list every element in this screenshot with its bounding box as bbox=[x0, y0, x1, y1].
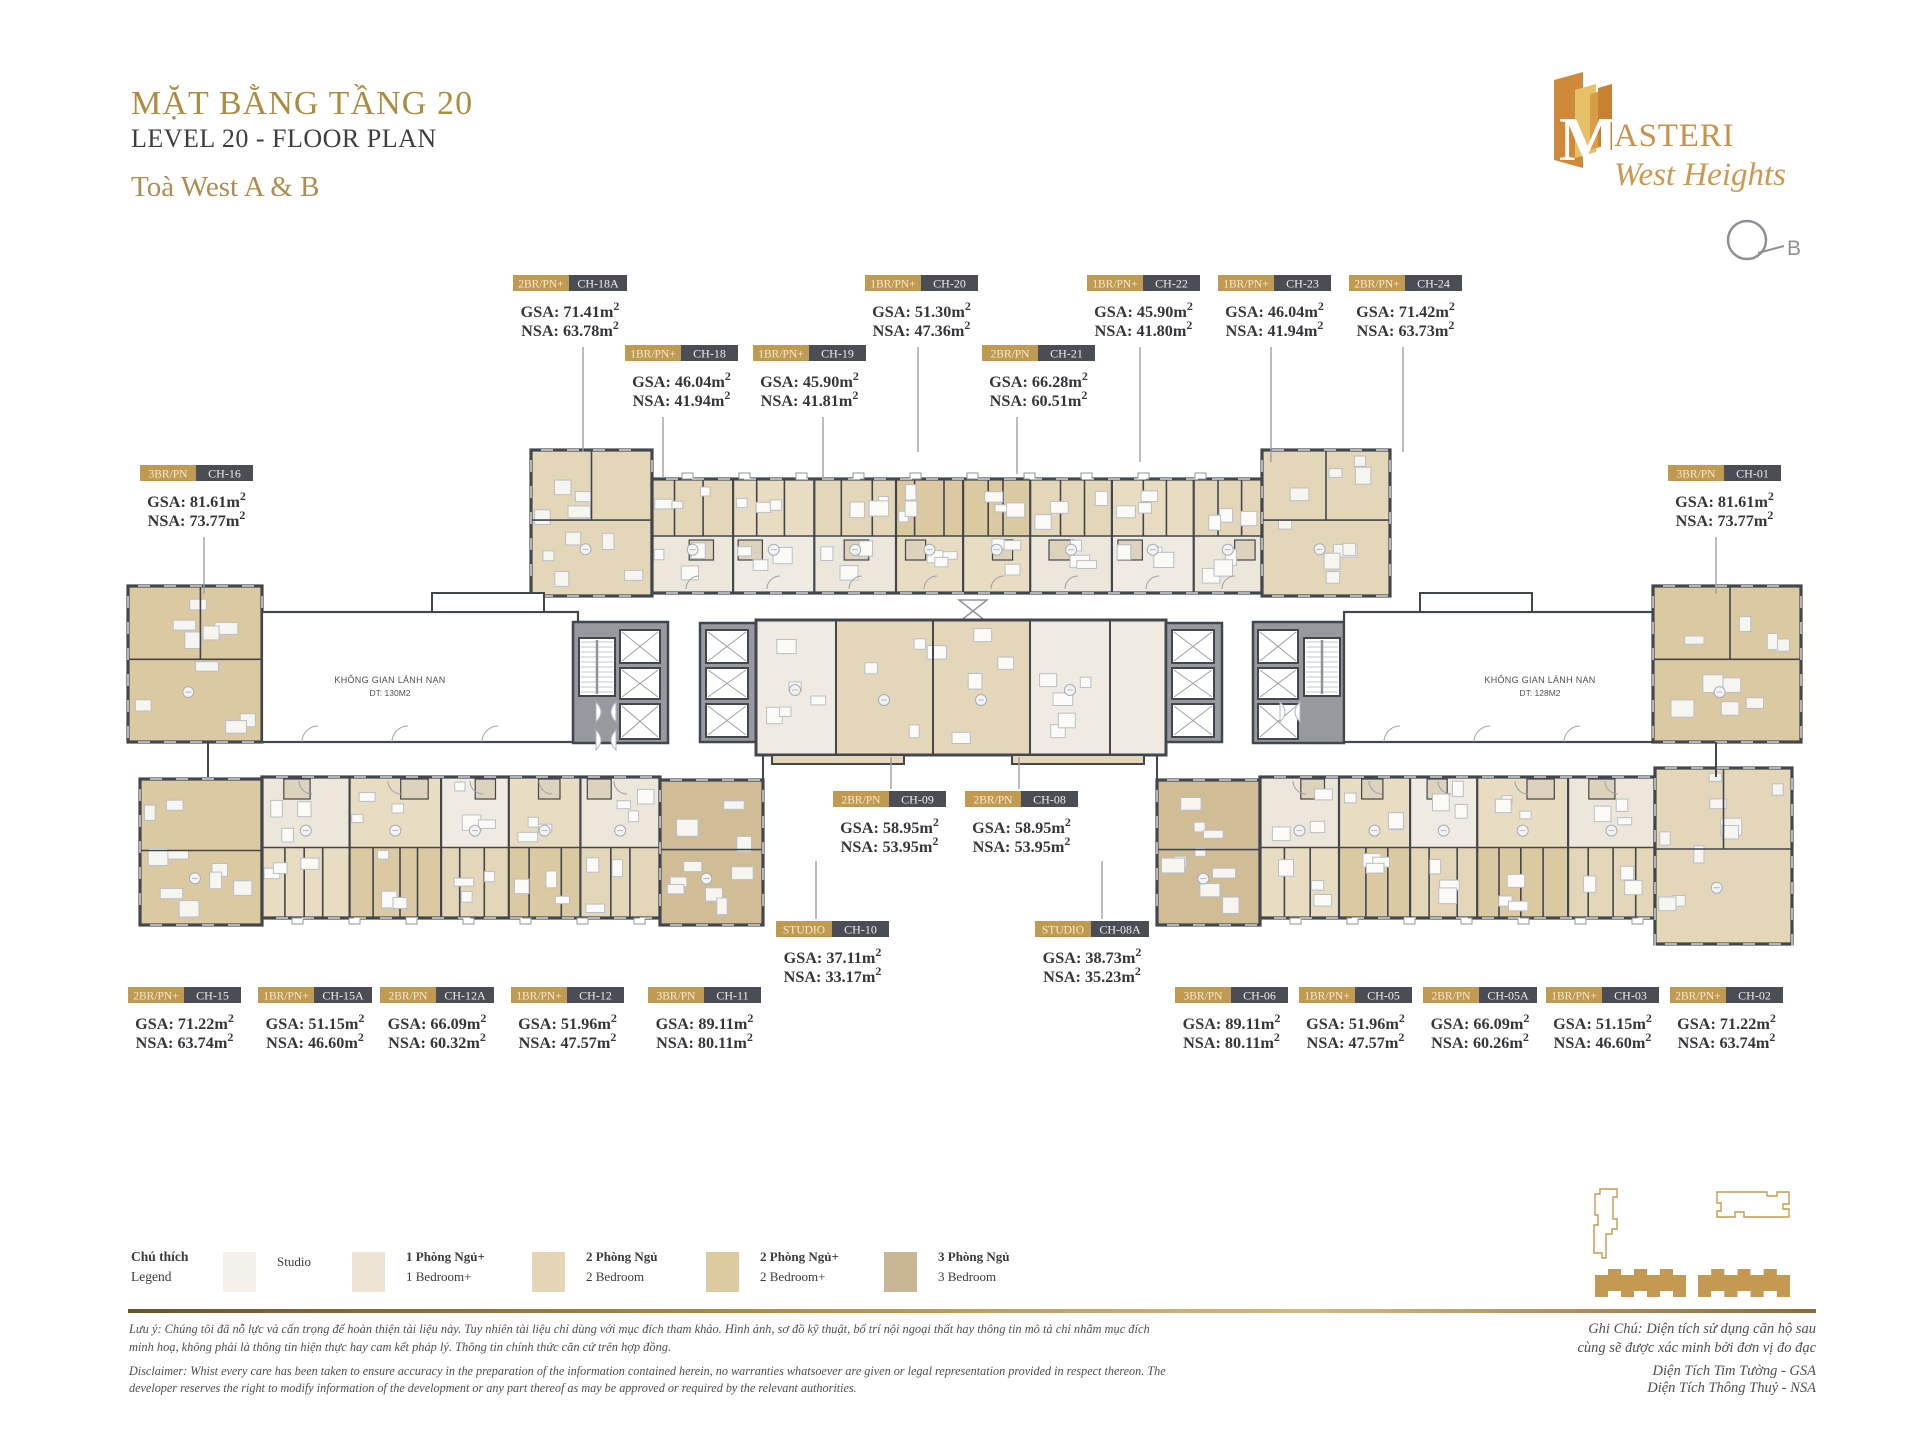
svg-text:NSA: 60.26m2: NSA: 60.26m2 bbox=[1431, 1030, 1529, 1052]
svg-text:Lưu ý: Chúng tôi đã nỗ lực và: Lưu ý: Chúng tôi đã nỗ lực và cẩn trọng … bbox=[128, 1322, 1150, 1336]
svg-text:2 Phòng Ngủ+: 2 Phòng Ngủ+ bbox=[760, 1249, 839, 1264]
svg-text:CH-05: CH-05 bbox=[1367, 989, 1400, 1003]
svg-text:1 Bedroom+: 1 Bedroom+ bbox=[406, 1269, 471, 1284]
svg-text:GSA: 58.95m2: GSA: 58.95m2 bbox=[840, 815, 939, 837]
svg-text:NSA: 63.78m2: NSA: 63.78m2 bbox=[521, 318, 619, 340]
svg-text:1BR/PN+: 1BR/PN+ bbox=[870, 279, 915, 291]
svg-text:CH-08A: CH-08A bbox=[1099, 923, 1141, 937]
svg-text:GSA: 51.30m2: GSA: 51.30m2 bbox=[872, 299, 971, 321]
svg-text:West Heights: West Heights bbox=[1614, 157, 1786, 193]
svg-text:GSA: 46.04m2: GSA: 46.04m2 bbox=[1225, 299, 1324, 321]
svg-text:GSA: 66.09m2: GSA: 66.09m2 bbox=[1431, 1011, 1530, 1033]
svg-text:NSA: 41.81m2: NSA: 41.81m2 bbox=[761, 388, 859, 410]
svg-text:STUDIO: STUDIO bbox=[783, 925, 825, 937]
svg-text:NSA: 41.94m2: NSA: 41.94m2 bbox=[1226, 318, 1324, 340]
svg-text:CH-23: CH-23 bbox=[1286, 277, 1319, 291]
svg-text:CH-12A: CH-12A bbox=[444, 989, 486, 1003]
svg-text:KHÔNG GIAN LÁNH NẠN: KHÔNG GIAN LÁNH NẠN bbox=[1484, 675, 1595, 685]
svg-text:Diện Tích Thông Thuỷ - NSA: Diện Tích Thông Thuỷ - NSA bbox=[1646, 1380, 1816, 1396]
svg-text:3BR/PN: 3BR/PN bbox=[657, 991, 697, 1003]
svg-text:Toà West A & B: Toà West A & B bbox=[131, 171, 319, 203]
svg-text:NSA: 60.32m2: NSA: 60.32m2 bbox=[388, 1030, 486, 1052]
svg-text:M: M bbox=[1559, 106, 1618, 174]
svg-text:2BR/PN: 2BR/PN bbox=[974, 795, 1014, 807]
svg-text:CH-15: CH-15 bbox=[196, 989, 229, 1003]
svg-text:NSA: 33.17m2: NSA: 33.17m2 bbox=[784, 964, 882, 986]
svg-text:1BR/PN+: 1BR/PN+ bbox=[1551, 991, 1596, 1003]
svg-text:B: B bbox=[1787, 237, 1801, 260]
svg-text:NSA: 35.23m2: NSA: 35.23m2 bbox=[1043, 964, 1141, 986]
svg-text:3BR/PN: 3BR/PN bbox=[1184, 991, 1224, 1003]
svg-text:3BR/PN: 3BR/PN bbox=[149, 469, 189, 481]
svg-text:NSA: 80.11m2: NSA: 80.11m2 bbox=[1183, 1030, 1280, 1052]
svg-text:3 Bedroom: 3 Bedroom bbox=[938, 1269, 996, 1284]
svg-text:2BR/PN+: 2BR/PN+ bbox=[133, 991, 178, 1003]
svg-text:CH-05A: CH-05A bbox=[1487, 989, 1529, 1003]
svg-text:CH-22: CH-22 bbox=[1155, 277, 1188, 291]
svg-text:CH-01: CH-01 bbox=[1736, 467, 1769, 481]
svg-text:1BR/PN+: 1BR/PN+ bbox=[1304, 991, 1349, 1003]
svg-text:1 Phòng Ngủ+: 1 Phòng Ngủ+ bbox=[406, 1249, 485, 1264]
svg-text:NSA: 80.11m2: NSA: 80.11m2 bbox=[656, 1030, 753, 1052]
svg-text:NSA: 47.57m2: NSA: 47.57m2 bbox=[1307, 1030, 1405, 1052]
svg-text:GSA: 71.42m2: GSA: 71.42m2 bbox=[1356, 299, 1455, 321]
svg-text:GSA: 51.15m2: GSA: 51.15m2 bbox=[266, 1011, 365, 1033]
svg-text:2BR/PN: 2BR/PN bbox=[991, 349, 1031, 361]
svg-text:DT: 130M2: DT: 130M2 bbox=[369, 688, 410, 698]
svg-text:NSA: 60.51m2: NSA: 60.51m2 bbox=[990, 388, 1088, 410]
svg-text:NSA: 63.74m2: NSA: 63.74m2 bbox=[1678, 1030, 1776, 1052]
svg-text:1BR/PN+: 1BR/PN+ bbox=[1223, 279, 1268, 291]
svg-text:3 Phòng Ngủ: 3 Phòng Ngủ bbox=[938, 1249, 1010, 1264]
svg-text:CH-11: CH-11 bbox=[716, 989, 748, 1003]
svg-text:GSA: 38.73m2: GSA: 38.73m2 bbox=[1043, 945, 1142, 967]
svg-text:DT: 128M2: DT: 128M2 bbox=[1519, 688, 1560, 698]
svg-text:NSA: 53.95m2: NSA: 53.95m2 bbox=[841, 834, 939, 856]
svg-text:GSA: 51.15m2: GSA: 51.15m2 bbox=[1553, 1011, 1652, 1033]
svg-text:GSA: 89.11m2: GSA: 89.11m2 bbox=[1183, 1011, 1281, 1033]
svg-text:3BR/PN: 3BR/PN bbox=[1677, 469, 1717, 481]
svg-text:1BR/PN+: 1BR/PN+ bbox=[1092, 279, 1137, 291]
svg-text:GSA: 89.11m2: GSA: 89.11m2 bbox=[656, 1011, 754, 1033]
svg-text:Ghi Chú: Diện tích sử dụng căn: Ghi Chú: Diện tích sử dụng căn hộ sau bbox=[1588, 1321, 1816, 1337]
svg-text:2BR/PN: 2BR/PN bbox=[1432, 991, 1472, 1003]
svg-text:2BR/PN+: 2BR/PN+ bbox=[1354, 279, 1399, 291]
svg-text:NSA: 47.57m2: NSA: 47.57m2 bbox=[519, 1030, 617, 1052]
svg-text:GSA: 71.22m2: GSA: 71.22m2 bbox=[1677, 1011, 1776, 1033]
svg-text:NSA: 73.77m2: NSA: 73.77m2 bbox=[148, 508, 246, 530]
svg-text:2 Bedroom: 2 Bedroom bbox=[586, 1269, 644, 1284]
svg-text:Legend: Legend bbox=[131, 1269, 172, 1284]
svg-text:NSA: 47.36m2: NSA: 47.36m2 bbox=[873, 318, 971, 340]
svg-text:GSA: 51.96m2: GSA: 51.96m2 bbox=[1306, 1011, 1405, 1033]
svg-text:CH-12: CH-12 bbox=[579, 989, 612, 1003]
svg-text:GSA: 66.09m2: GSA: 66.09m2 bbox=[388, 1011, 487, 1033]
svg-text:Disclaimer: Whist every care h: Disclaimer: Whist every care has been ta… bbox=[128, 1364, 1166, 1378]
svg-text:NSA: 53.95m2: NSA: 53.95m2 bbox=[973, 834, 1071, 856]
svg-text:ASTERI: ASTERI bbox=[1614, 118, 1734, 154]
svg-text:GSA: 46.04m2: GSA: 46.04m2 bbox=[632, 369, 731, 391]
svg-text:STUDIO: STUDIO bbox=[1042, 925, 1084, 937]
svg-text:2 Bedroom+: 2 Bedroom+ bbox=[760, 1269, 825, 1284]
svg-text:Studio: Studio bbox=[277, 1254, 311, 1269]
svg-text:2 Phòng Ngủ: 2 Phòng Ngủ bbox=[586, 1249, 658, 1264]
svg-text:CH-16: CH-16 bbox=[208, 467, 241, 481]
svg-text:1BR/PN+: 1BR/PN+ bbox=[263, 991, 308, 1003]
svg-text:GSA: 81.61m2: GSA: 81.61m2 bbox=[147, 489, 246, 511]
svg-text:NSA: 63.74m2: NSA: 63.74m2 bbox=[136, 1030, 234, 1052]
svg-text:Chú thích: Chú thích bbox=[131, 1249, 189, 1264]
svg-text:LEVEL 20 - FLOOR PLAN: LEVEL 20 - FLOOR PLAN bbox=[131, 124, 437, 153]
svg-text:CH-03: CH-03 bbox=[1614, 989, 1647, 1003]
svg-text:2BR/PN+: 2BR/PN+ bbox=[518, 279, 563, 291]
svg-text:NSA: 46.60m2: NSA: 46.60m2 bbox=[1554, 1030, 1652, 1052]
svg-text:CH-10: CH-10 bbox=[844, 923, 877, 937]
svg-text:CH-18: CH-18 bbox=[693, 347, 726, 361]
svg-text:minh hoạ, không phải là thông: minh hoạ, không phải là thông tin hiện t… bbox=[129, 1340, 671, 1354]
svg-text:1BR/PN+: 1BR/PN+ bbox=[516, 991, 561, 1003]
svg-text:CH-18A: CH-18A bbox=[577, 277, 619, 291]
svg-text:NSA: 73.77m2: NSA: 73.77m2 bbox=[1676, 508, 1774, 530]
svg-text:Diện Tích Tim Tường - GSA: Diện Tích Tim Tường - GSA bbox=[1652, 1363, 1817, 1379]
svg-text:CH-02: CH-02 bbox=[1738, 989, 1771, 1003]
svg-text:CH-21: CH-21 bbox=[1050, 347, 1083, 361]
svg-text:GSA: 45.90m2: GSA: 45.90m2 bbox=[760, 369, 859, 391]
svg-text:GSA: 81.61m2: GSA: 81.61m2 bbox=[1675, 489, 1774, 511]
svg-text:MẶT BẰNG TẦNG 20: MẶT BẰNG TẦNG 20 bbox=[131, 84, 473, 122]
svg-text:developer reserves the right t: developer reserves the right to modify i… bbox=[129, 1381, 857, 1395]
svg-text:GSA: 37.11m2: GSA: 37.11m2 bbox=[784, 945, 882, 967]
svg-text:2BR/PN: 2BR/PN bbox=[389, 991, 429, 1003]
svg-text:GSA: 58.95m2: GSA: 58.95m2 bbox=[972, 815, 1071, 837]
svg-text:2BR/PN+: 2BR/PN+ bbox=[1675, 991, 1720, 1003]
svg-text:KHÔNG GIAN LÁNH NẠN: KHÔNG GIAN LÁNH NẠN bbox=[334, 675, 445, 685]
svg-text:CH-24: CH-24 bbox=[1417, 277, 1450, 291]
svg-text:2BR/PN: 2BR/PN bbox=[842, 795, 882, 807]
svg-text:NSA: 41.94m2: NSA: 41.94m2 bbox=[633, 388, 731, 410]
svg-text:GSA: 51.96m2: GSA: 51.96m2 bbox=[518, 1011, 617, 1033]
svg-text:GSA: 71.22m2: GSA: 71.22m2 bbox=[135, 1011, 234, 1033]
svg-text:CH-20: CH-20 bbox=[933, 277, 966, 291]
svg-text:CH-19: CH-19 bbox=[821, 347, 854, 361]
svg-text:NSA: 63.73m2: NSA: 63.73m2 bbox=[1357, 318, 1455, 340]
svg-text:CH-08: CH-08 bbox=[1033, 793, 1066, 807]
svg-text:GSA: 71.41m2: GSA: 71.41m2 bbox=[521, 299, 620, 321]
svg-text:CH-06: CH-06 bbox=[1243, 989, 1276, 1003]
svg-text:CH-15A: CH-15A bbox=[322, 989, 364, 1003]
svg-text:cùng sẽ được xác minh bởi đơn: cùng sẽ được xác minh bởi đơn vị đo đạc bbox=[1578, 1340, 1817, 1356]
svg-text:GSA: 45.90m2: GSA: 45.90m2 bbox=[1094, 299, 1193, 321]
svg-text:NSA: 46.60m2: NSA: 46.60m2 bbox=[266, 1030, 364, 1052]
svg-text:GSA: 66.28m2: GSA: 66.28m2 bbox=[989, 369, 1088, 391]
svg-text:NSA: 41.80m2: NSA: 41.80m2 bbox=[1095, 318, 1193, 340]
svg-text:CH-09: CH-09 bbox=[901, 793, 934, 807]
svg-text:1BR/PN+: 1BR/PN+ bbox=[630, 349, 675, 361]
svg-text:1BR/PN+: 1BR/PN+ bbox=[758, 349, 803, 361]
